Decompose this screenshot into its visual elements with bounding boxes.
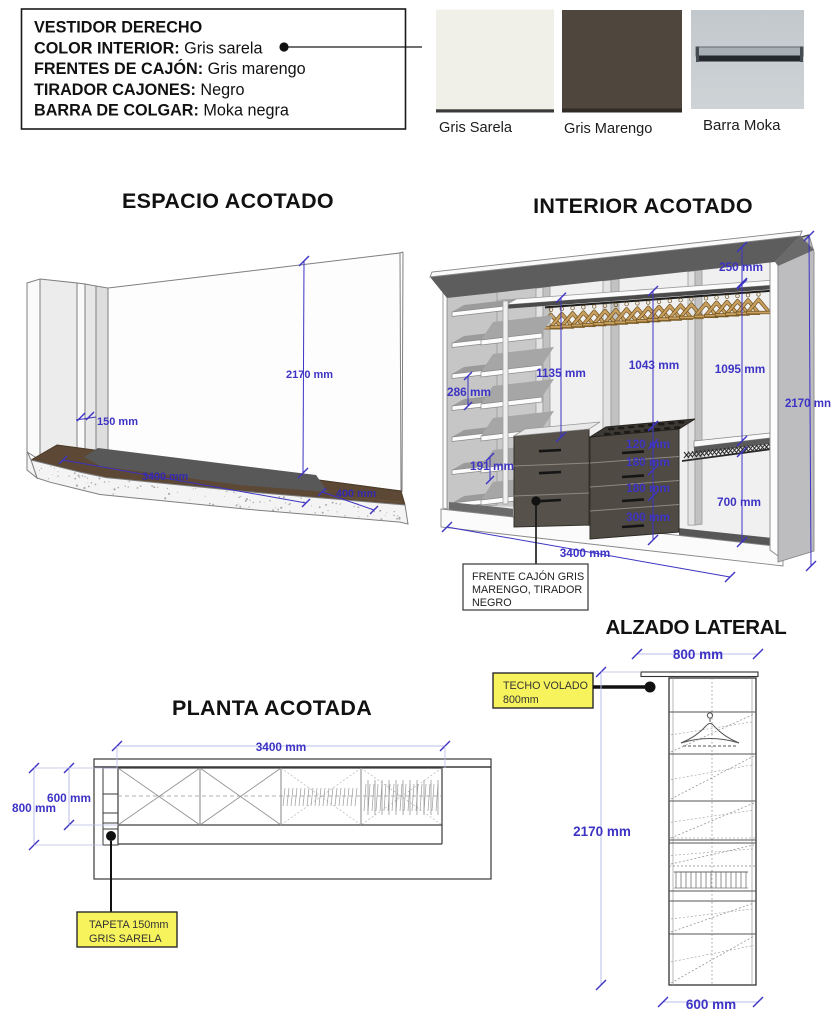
svg-text:2170 mm: 2170 mm bbox=[286, 369, 333, 381]
svg-text:800mm: 800mm bbox=[503, 694, 539, 706]
svg-text:Barra Moka: Barra Moka bbox=[703, 117, 781, 134]
svg-text:1135 mm: 1135 mm bbox=[536, 366, 586, 380]
svg-text:BARRA DE COLGAR: Moka negra: BARRA DE COLGAR: Moka negra bbox=[34, 102, 289, 120]
svg-text:400 mm: 400 mm bbox=[336, 488, 376, 500]
svg-text:3400 mm: 3400 mm bbox=[560, 546, 611, 560]
svg-text:VESTIDOR DERECHO: VESTIDOR DERECHO bbox=[34, 19, 202, 37]
svg-text:TIRADOR CAJONES: Negro: TIRADOR CAJONES: Negro bbox=[34, 81, 244, 99]
svg-text:120 mm: 120 mm bbox=[626, 437, 670, 451]
svg-text:Gris Sarela: Gris Sarela bbox=[439, 120, 513, 136]
svg-text:286 mm: 286 mm bbox=[447, 385, 491, 399]
svg-text:TECHO VOLADO: TECHO VOLADO bbox=[503, 680, 588, 692]
svg-text:Gris Marengo: Gris Marengo bbox=[564, 121, 652, 137]
svg-text:TAPETA 150mm: TAPETA 150mm bbox=[89, 919, 168, 931]
svg-text:250 mm: 250 mm bbox=[719, 260, 763, 274]
svg-text:800 mm: 800 mm bbox=[12, 801, 56, 815]
svg-text:800 mm: 800 mm bbox=[673, 647, 723, 662]
svg-text:ALZADO LATERAL: ALZADO LATERAL bbox=[605, 616, 786, 639]
svg-text:180 mm: 180 mm bbox=[626, 481, 670, 495]
svg-text:180 mm: 180 mm bbox=[626, 455, 670, 469]
svg-text:600 mm: 600 mm bbox=[686, 997, 736, 1012]
svg-text:PLANTA ACOTADA: PLANTA ACOTADA bbox=[172, 696, 372, 720]
svg-text:FRENTES DE CAJÓN: Gris marengo: FRENTES DE CAJÓN: Gris marengo bbox=[34, 59, 306, 78]
svg-text:MARENGO, TIRADOR: MARENGO, TIRADOR bbox=[472, 584, 582, 596]
svg-text:300 mm: 300 mm bbox=[626, 510, 670, 524]
svg-text:2170 mn: 2170 mn bbox=[785, 398, 831, 410]
svg-text:FRENTE CAJÓN GRIS: FRENTE CAJÓN GRIS bbox=[472, 570, 584, 583]
svg-text:GRIS SARELA: GRIS SARELA bbox=[89, 933, 162, 945]
svg-text:ESPACIO ACOTADO: ESPACIO ACOTADO bbox=[122, 189, 334, 213]
svg-text:150 mm: 150 mm bbox=[97, 416, 138, 428]
svg-text:191 mm: 191 mm bbox=[470, 459, 514, 473]
svg-text:COLOR INTERIOR: Gris sarela: COLOR INTERIOR: Gris sarela bbox=[34, 39, 262, 57]
svg-text:700 mm: 700 mm bbox=[717, 495, 761, 509]
svg-text:3400 mm: 3400 mm bbox=[142, 471, 188, 483]
svg-text:NEGRO: NEGRO bbox=[472, 597, 512, 609]
svg-text:3400 mm: 3400 mm bbox=[256, 740, 307, 754]
svg-text:1043 mm: 1043 mm bbox=[629, 358, 680, 372]
svg-text:INTERIOR ACOTADO: INTERIOR ACOTADO bbox=[533, 194, 753, 218]
svg-text:1095 mm: 1095 mm bbox=[715, 362, 766, 376]
svg-text:2170 mm: 2170 mm bbox=[573, 824, 631, 839]
